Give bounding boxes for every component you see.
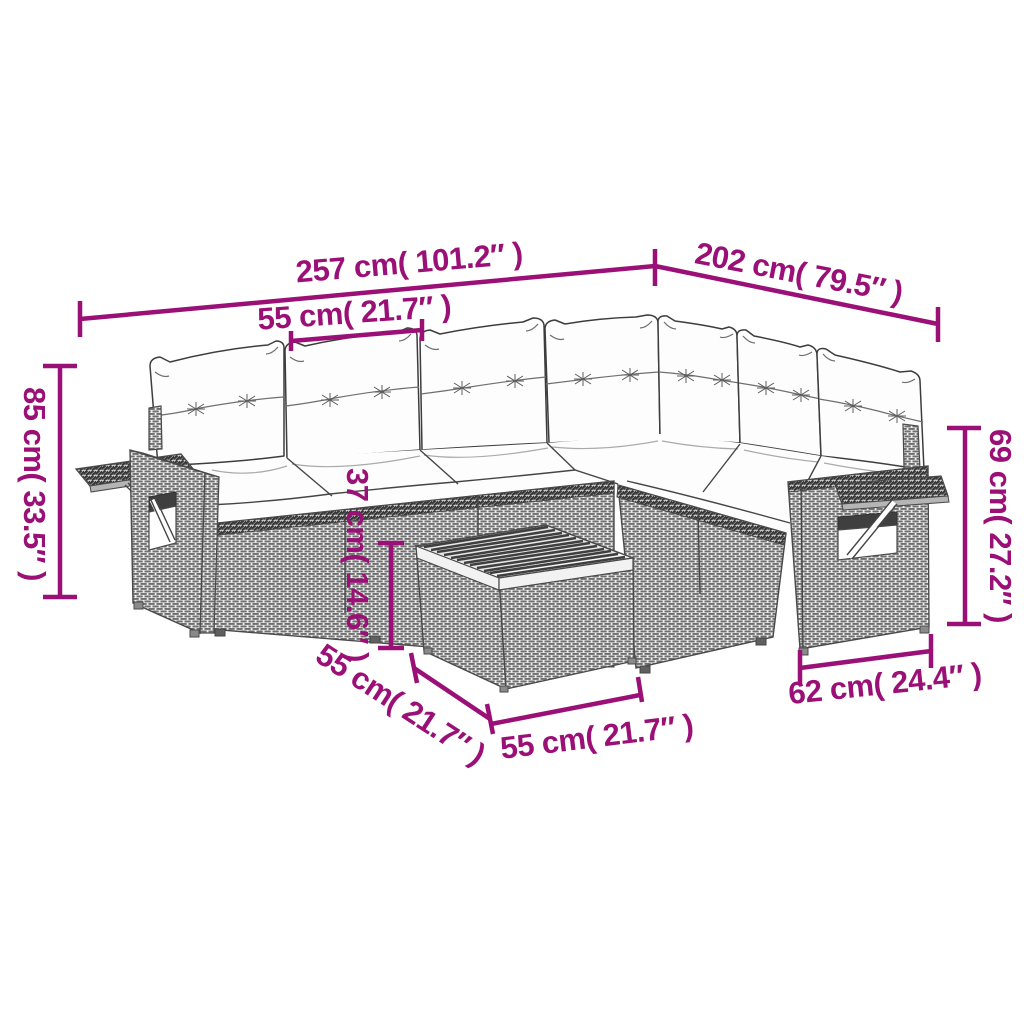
svg-text:69 cm( 27.2″ ): 69 cm( 27.2″ ) [983,429,1018,623]
svg-text:85 cm( 33.5″ ): 85 cm( 33.5″ ) [17,387,52,581]
svg-text:37 cm( 14.6″ ): 37 cm( 14.6″ ) [340,468,375,662]
